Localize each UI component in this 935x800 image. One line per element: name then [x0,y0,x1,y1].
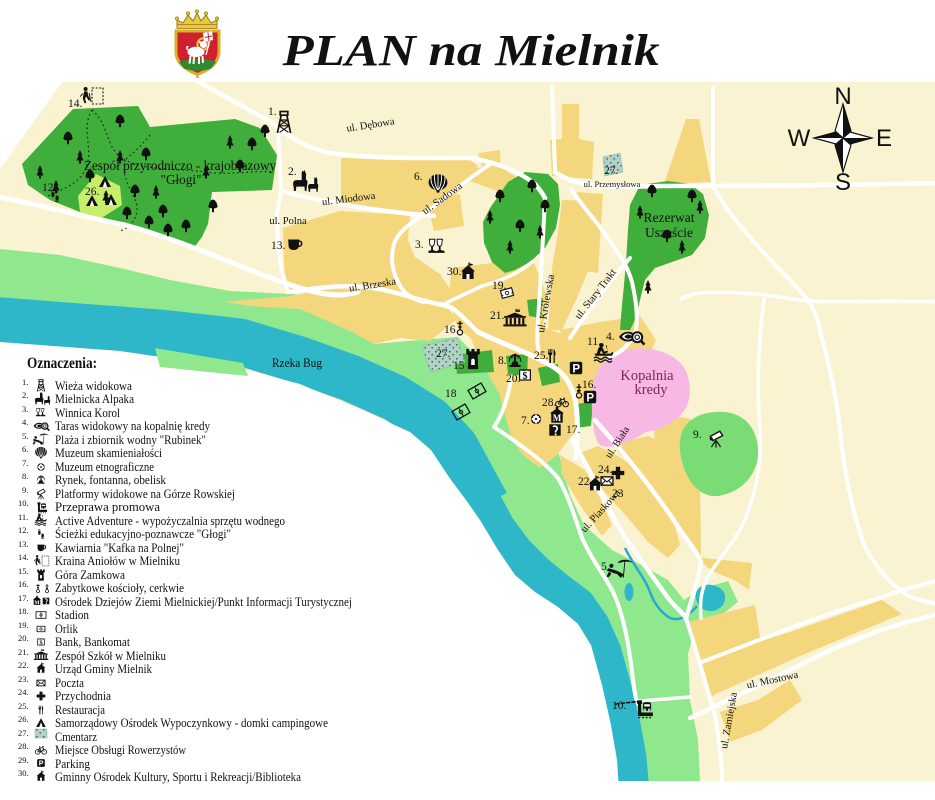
svg-text:5.: 5. [22,431,28,441]
svg-text:13.: 13. [271,240,286,252]
svg-text:13.: 13. [18,539,29,549]
svg-text:20.: 20. [18,633,29,643]
svg-text:3.: 3. [22,404,28,414]
svg-text:26.: 26. [18,714,29,724]
svg-text:Ścieżki edukacyjno-poznawcze ": Ścieżki edukacyjno-poznawcze "Głogi" [55,526,231,541]
svg-text:ul. Polna: ul. Polna [269,216,307,227]
svg-text:2.: 2. [22,390,28,400]
svg-text:PLAN na Mielnik: PLAN na Mielnik [281,26,659,75]
svg-text:10.: 10. [18,498,29,508]
svg-text:16.: 16. [582,379,597,391]
svg-text:Rynek, fontanna, obelisk: Rynek, fontanna, obelisk [55,472,166,487]
svg-text:18: 18 [445,388,457,400]
svg-text:6.: 6. [414,171,423,183]
svg-text:Zabytkowe kościoły, cerkwie: Zabytkowe kościoły, cerkwie [55,580,184,595]
svg-text:kredy: kredy [634,382,668,398]
svg-text:29.: 29. [18,755,29,765]
svg-text:Urząd Gminy Mielnik: Urząd Gminy Mielnik [55,661,152,676]
svg-text:2.: 2. [288,166,297,178]
svg-text:28.: 28. [542,397,557,409]
svg-text:E: E [876,125,892,152]
svg-text:7.: 7. [22,458,28,468]
svg-text:Przeprawa promowa: Przeprawa promowa [55,499,160,514]
svg-text:"Głogi": "Głogi" [161,172,202,187]
svg-text:12.: 12. [18,525,29,535]
svg-text:Stadion: Stadion [55,607,89,622]
svg-text:Miejsce Obsługi Rowerzystów: Miejsce Obsługi Rowerzystów [55,742,186,757]
svg-text:27.: 27. [18,728,29,738]
svg-text:9.: 9. [693,429,702,441]
svg-text:23: 23 [612,488,624,500]
svg-text:21.: 21. [18,647,29,657]
svg-text:N: N [834,83,851,110]
svg-text:24.: 24. [18,687,29,697]
svg-text:16.: 16. [18,579,29,589]
svg-text:8.: 8. [22,471,28,481]
svg-text:15: 15 [453,360,465,372]
svg-text:S: S [835,169,851,196]
svg-text:25.: 25. [18,701,29,711]
svg-text:Kraina Aniołów w Mielniku: Kraina Aniołów w Mielniku [55,553,180,568]
svg-text:19.: 19. [18,620,29,630]
svg-text:30.: 30. [447,266,462,278]
svg-text:18.: 18. [18,606,29,616]
svg-text:27.: 27. [604,165,619,177]
svg-text:3.: 3. [415,239,424,251]
svg-text:W: W [788,125,811,152]
svg-text:Oznaczenia:: Oznaczenia: [27,355,97,372]
svg-text:11.: 11. [587,336,601,348]
svg-text:1.: 1. [268,106,277,118]
svg-text:9.: 9. [22,485,28,495]
svg-text:30.: 30. [18,768,29,778]
svg-text:4.: 4. [606,331,615,343]
svg-text:8.: 8. [498,355,507,367]
svg-text:Przychodnia: Przychodnia [55,688,111,703]
svg-text:6.: 6. [22,444,28,454]
svg-text:Muzeum skamieniałości: Muzeum skamieniałości [55,445,162,460]
svg-text:28.: 28. [18,741,29,751]
svg-text:22.: 22. [18,660,29,670]
svg-text:27.: 27. [436,348,451,360]
svg-text:ul. Przemysłowa: ul. Przemysłowa [584,179,641,189]
svg-text:11.: 11. [18,512,28,522]
svg-text:1.: 1. [22,377,28,387]
svg-text:Mielnicka Alpaka: Mielnicka Alpaka [55,391,134,406]
svg-text:17.: 17. [18,593,29,603]
svg-text:16: 16 [444,324,456,336]
svg-text:4.: 4. [22,417,28,427]
svg-text:Taras widokowy na kopalnię kre: Taras widokowy na kopalnię kredy [55,418,210,433]
svg-text:5.: 5. [601,561,610,573]
svg-text:Gminny Ośrodek Kultury, Sportu: Gminny Ośrodek Kultury, Sportu i Rekreac… [55,769,301,784]
svg-text:14.: 14. [18,552,29,562]
svg-text:24.: 24. [598,464,613,476]
svg-text:Samorządowy Ośrodek Wypoczynko: Samorządowy Ośrodek Wypoczynkowy - domki… [55,715,328,730]
svg-text:7.: 7. [521,415,530,427]
svg-text:23.: 23. [18,674,29,684]
svg-text:21.: 21. [490,310,505,322]
svg-text:15.: 15. [18,566,29,576]
svg-text:14.: 14. [68,98,83,110]
svg-text:Rzeka Bug: Rzeka Bug [272,355,322,370]
svg-text:10.: 10. [612,700,627,712]
svg-text:25.: 25. [534,350,549,362]
svg-text:Ośrodek Dziejów Ziemi Mielnick: Ośrodek Dziejów Ziemi Mielnickiej/Punkt … [55,594,352,609]
svg-text:17.: 17. [566,424,581,436]
svg-text:Zespół przyrodniczo - krajobra: Zespół przyrodniczo - krajobrazowy [84,158,277,173]
svg-text:Bank, Bankomat: Bank, Bankomat [55,634,130,649]
svg-text:20.: 20. [506,373,521,385]
svg-text:Rezerwat: Rezerwat [644,210,695,225]
